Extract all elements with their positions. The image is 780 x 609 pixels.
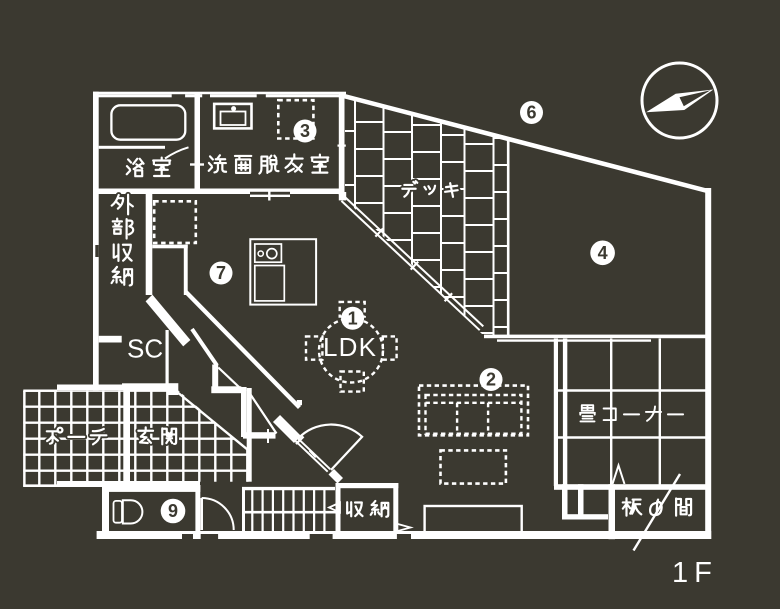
- svg-text:1: 1: [348, 308, 358, 328]
- svg-text:6: 6: [526, 103, 536, 123]
- svg-text:9: 9: [168, 501, 178, 521]
- svg-text:SC: SC: [127, 334, 163, 364]
- svg-text:LDK: LDK: [323, 332, 377, 362]
- svg-text:4: 4: [598, 243, 608, 263]
- svg-text:7: 7: [216, 263, 226, 283]
- svg-text:3: 3: [300, 121, 310, 141]
- svg-text:2: 2: [486, 370, 496, 390]
- svg-text:1F: 1F: [672, 557, 718, 589]
